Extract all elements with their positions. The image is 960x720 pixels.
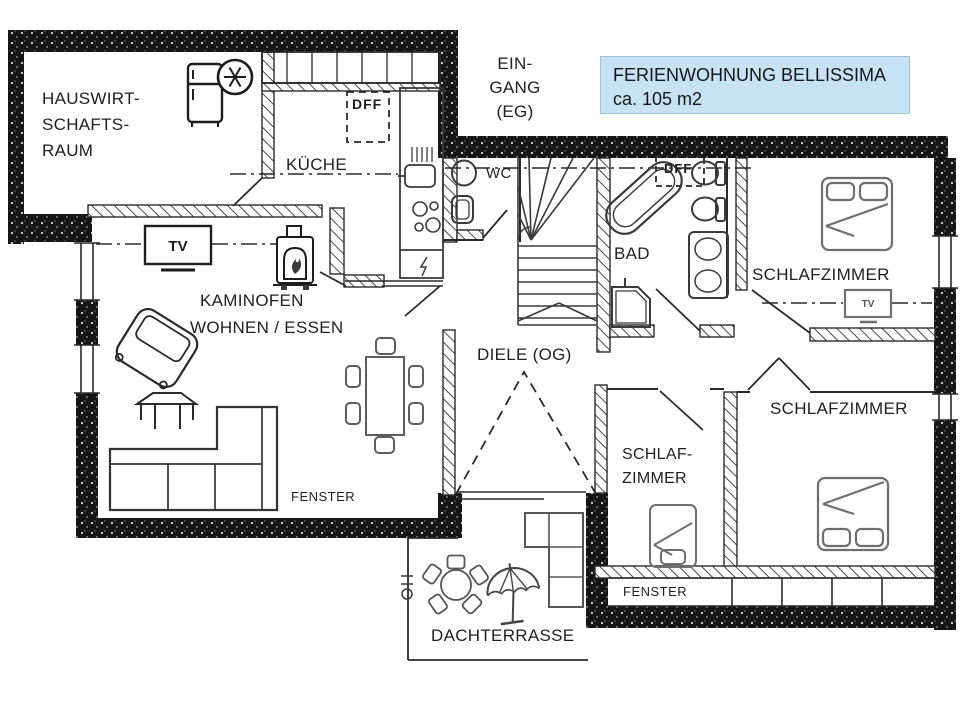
tv-living-label: TV xyxy=(168,238,187,255)
bidet-icon xyxy=(692,198,725,222)
wood-stove-icon xyxy=(273,226,317,290)
label-window-living: FENSTER xyxy=(291,489,355,504)
dish-rack-icon xyxy=(412,147,432,162)
label-living-dining: WOHNEN / ESSEN xyxy=(190,316,343,340)
title-box: FERIENWOHNUNG BELLISSIMA ca. 105 m2 xyxy=(600,56,910,114)
label-bedroom-bottom-right: SCHLAFZIMMER xyxy=(770,397,908,421)
staircase xyxy=(518,158,597,325)
hob-icon xyxy=(413,202,440,232)
label-roof-window-bath: DFF xyxy=(664,161,692,177)
double-bed-bottom-icon xyxy=(818,478,888,550)
label-bedroom-small: SCHLAF- ZIMMER xyxy=(622,443,693,491)
dining-set-icon xyxy=(346,338,423,453)
label-window-bedroom: FENSTER xyxy=(623,584,687,599)
tv-bedroom-label: TV xyxy=(862,299,875,310)
label-utility-room: HAUSWIRT- SCHAFTS- RAUM xyxy=(42,86,140,164)
label-entrance: EIN- GANG (EG) xyxy=(470,52,560,124)
label-hallway: DIELE (OG) xyxy=(477,343,572,367)
title-line-1: FERIENWOHNUNG BELLISSIMA xyxy=(613,63,909,87)
floorplan-page: TV xyxy=(0,0,960,720)
drain-icon xyxy=(401,576,413,599)
sink-icon xyxy=(398,165,435,187)
sectional-sofa-icon xyxy=(110,407,277,510)
title-line-2: ca. 105 m2 xyxy=(613,87,909,111)
label-roof-terrace: DACHTERRASSE xyxy=(431,624,574,648)
label-wood-stove: KAMINOFEN xyxy=(200,289,304,313)
single-bed-icon xyxy=(650,505,696,567)
label-kitchen: KÜCHE xyxy=(286,153,347,177)
window-icon xyxy=(74,243,100,300)
double-washbasin-icon xyxy=(689,232,728,298)
fridge-icon xyxy=(188,64,222,127)
dishwasher-icon xyxy=(421,257,427,276)
label-wc: WC xyxy=(486,162,512,186)
tv-bedroom-icon: TV xyxy=(845,290,891,322)
terrace-table-set-icon xyxy=(422,556,489,615)
wall-toilet-icon xyxy=(692,162,725,186)
armchair-icon xyxy=(111,305,201,393)
tv-living-icon: TV xyxy=(145,226,211,270)
coffee-table-icon xyxy=(137,393,196,429)
lounge-sofa-icon xyxy=(525,513,583,607)
snowflake-icon xyxy=(218,60,252,94)
double-bed-top-icon xyxy=(822,178,892,250)
kitchen-cabinet-row-icon xyxy=(262,52,440,83)
window-icon xyxy=(74,345,100,393)
label-bath: BAD xyxy=(614,242,650,266)
label-roof-window-kitchen: DFF xyxy=(352,96,382,112)
label-bedroom-top-right: SCHLAFZIMMER xyxy=(752,263,890,287)
parasol-icon xyxy=(484,560,544,626)
window-icon xyxy=(932,236,958,288)
window-icon xyxy=(932,394,958,420)
kitchen-counter xyxy=(398,88,443,278)
shower-icon xyxy=(612,278,650,327)
